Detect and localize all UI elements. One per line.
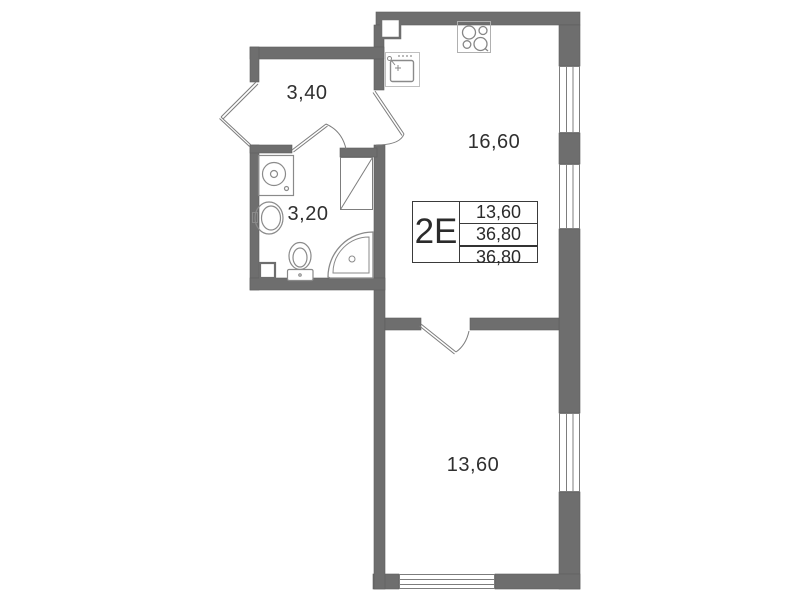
room-area-label-bathroom: 3,20	[263, 202, 353, 226]
room-area-label-kitchen-living: 16,60	[449, 130, 539, 154]
wall-segment	[559, 25, 580, 66]
wall-segment	[376, 12, 580, 25]
floor-plan-canvas	[0, 0, 799, 600]
kitchen-fixtures-group	[381, 19, 491, 87]
window-icon	[400, 575, 495, 589]
wall-segment	[250, 47, 259, 82]
wall-segment	[250, 278, 385, 290]
wall-segment	[559, 229, 580, 413]
wall-segment	[250, 47, 384, 59]
unit-area-row-living: 13,60	[460, 202, 537, 224]
kitchen-sink-icon	[386, 53, 420, 87]
stove-icon	[458, 22, 491, 53]
window-icon	[560, 67, 580, 133]
unit-area-row-total: 36,80	[460, 224, 537, 247]
room-area-label-bedroom: 13,60	[428, 453, 518, 477]
wall-segment	[495, 574, 580, 589]
door-swing-icon	[373, 91, 404, 145]
window-icon	[560, 414, 580, 492]
wall-segment	[340, 148, 377, 157]
bath-corner-duct-icon	[260, 263, 275, 278]
unit-area-row-total-with-balcony: 36,80	[460, 247, 537, 268]
washing-machine-icon	[259, 156, 294, 196]
window-icon	[560, 165, 580, 229]
shower-icon	[328, 232, 373, 278]
unit-info-box: 2Е 13,60 36,80 36,80	[412, 201, 538, 263]
unit-type-label: 2Е	[413, 202, 460, 262]
unit-area-table: 13,60 36,80 36,80	[460, 202, 537, 262]
door-swing-icon	[420, 324, 470, 354]
wall-segment	[374, 145, 385, 589]
wall-segment	[250, 145, 292, 153]
door-swing-icon	[292, 124, 346, 152]
room-area-label-hallway: 3,40	[262, 81, 352, 105]
toilet-icon	[288, 243, 314, 281]
wall-segment	[385, 318, 421, 330]
wall-segment	[470, 318, 559, 330]
floor-plan-page: 3,40 3,20 16,60 13,60 2Е 13,60 36,80 36,…	[0, 0, 799, 600]
vent-box-icon	[381, 19, 400, 38]
entrance-door-swing-icon	[220, 82, 259, 147]
wall-segment	[559, 133, 580, 164]
